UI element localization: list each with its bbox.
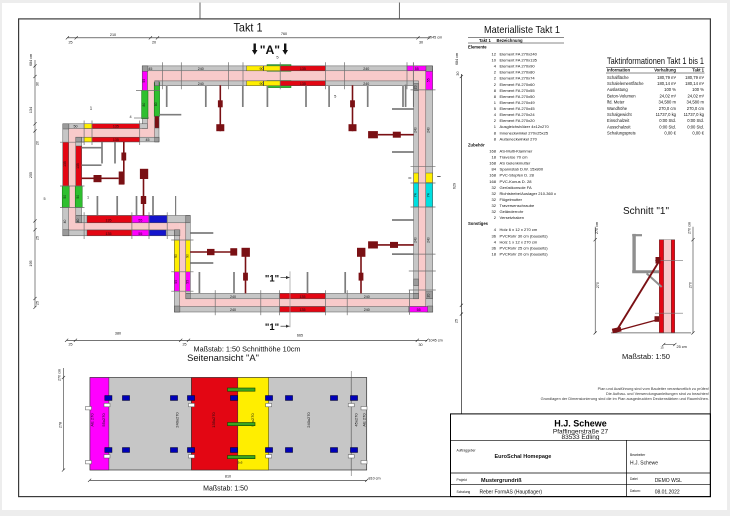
svg-text:Inneneckwinkel 270x25x25: Inneneckwinkel 270x25x25: [500, 130, 549, 135]
svg-text:11737,0 kg: 11737,0 kg: [684, 112, 705, 117]
svg-text:25: 25: [36, 236, 40, 240]
svg-text:11737,0 kg: 11737,0 kg: [656, 112, 677, 117]
svg-text:24,02 m³: 24,02 m³: [659, 93, 676, 98]
svg-text:0:00 Std.: 0:00 Std.: [687, 118, 704, 123]
svg-text:PVC-Stopfen D. 28: PVC-Stopfen D. 28: [500, 173, 535, 178]
svg-text:135: 135: [106, 219, 112, 223]
svg-text:0,00 €: 0,00 €: [692, 131, 704, 136]
svg-text:30: 30: [419, 40, 423, 44]
svg-text:0:00 Std.: 0:00 Std.: [659, 118, 676, 123]
svg-text:40: 40: [76, 219, 80, 223]
svg-text:Element FA 270x24: Element FA 270x24: [500, 112, 536, 117]
svg-text:Schalfläche: Schalfläche: [607, 75, 629, 80]
svg-text:20: 20: [152, 40, 156, 44]
svg-text:Versetzhaken: Versetzhaken: [500, 215, 525, 220]
svg-text:Schnitt "1": Schnitt "1": [623, 206, 669, 217]
svg-text:240: 240: [230, 295, 236, 299]
svg-text:Reber FormAS (Hauptlager): Reber FormAS (Hauptlager): [480, 489, 543, 495]
svg-text:240: 240: [413, 237, 417, 243]
svg-text:2: 2: [494, 215, 497, 220]
svg-text:Flügelmutter: Flügelmutter: [500, 197, 523, 202]
svg-text:100 %: 100 %: [664, 87, 676, 92]
svg-text:1: 1: [90, 106, 93, 111]
svg-text:Materialliste Takt 1: Materialliste Takt 1: [484, 25, 560, 36]
svg-text:24,02 m³: 24,02 m³: [687, 93, 704, 98]
svg-text:PVC-Konus D. 28: PVC-Konus D. 28: [500, 179, 533, 184]
svg-text:Außeneckwinkel 270: Außeneckwinkel 270: [500, 136, 538, 141]
svg-text:25: 25: [455, 319, 459, 323]
svg-text:684 cm: 684 cm: [455, 53, 459, 65]
svg-text:Ausgleichshölzer 4x12x270: Ausgleichshölzer 4x12x270: [500, 124, 550, 129]
svg-text:195: 195: [29, 260, 33, 266]
svg-text:PVCRohr 25 cm (bauseits): PVCRohr 25 cm (bauseits): [500, 245, 549, 250]
svg-text:4: 4: [494, 227, 497, 232]
svg-text:810 cm: 810 cm: [369, 477, 381, 481]
svg-text:Projekt: Projekt: [457, 478, 467, 482]
svg-text:2: 2: [494, 118, 497, 123]
svg-text:25: 25: [68, 343, 72, 347]
svg-text:90: 90: [260, 82, 264, 86]
svg-text:Holz 6 x 12 x 270 cm: Holz 6 x 12 x 270 cm: [500, 227, 538, 232]
svg-text:08.01.2022: 08.01.2022: [655, 490, 680, 496]
svg-text:134: 134: [29, 107, 33, 113]
svg-text:0,00 €: 0,00 €: [664, 131, 676, 136]
svg-text:8: 8: [494, 136, 497, 141]
svg-text:8: 8: [494, 94, 497, 99]
svg-text:36: 36: [491, 233, 496, 238]
svg-text:30: 30: [418, 343, 422, 347]
svg-text:Takt 1: Takt 1: [479, 38, 491, 43]
svg-text:"1": "1": [265, 322, 279, 333]
svg-text:Datei: Datei: [630, 477, 638, 481]
svg-text:760: 760: [281, 32, 287, 36]
svg-text:55: 55: [138, 219, 142, 223]
svg-text:Geländerrohr: Geländerrohr: [500, 209, 524, 214]
svg-text:240: 240: [427, 237, 431, 243]
svg-text:32: 32: [491, 209, 496, 214]
svg-text:240: 240: [230, 308, 236, 312]
svg-text:1045 cm: 1045 cm: [429, 338, 443, 342]
svg-text:DEMO WSL: DEMO WSL: [655, 478, 682, 484]
svg-text:168: 168: [489, 179, 497, 184]
svg-text:45: 45: [146, 138, 150, 142]
svg-text:Takt 1: Takt 1: [692, 68, 704, 73]
svg-text:1: 1: [494, 124, 497, 129]
svg-text:168: 168: [489, 149, 497, 154]
svg-text:55x270: 55x270: [101, 413, 106, 427]
svg-text:55: 55: [427, 78, 431, 82]
svg-text:50: 50: [74, 125, 78, 129]
svg-text:Schalgewicht: Schalgewicht: [607, 112, 633, 117]
svg-text:lfd. Meter: lfd. Meter: [607, 100, 625, 105]
svg-text:5x5: 5x5: [238, 461, 243, 465]
svg-text:34,580 m: 34,580 m: [687, 100, 705, 105]
svg-text:135: 135: [300, 82, 306, 86]
svg-text:Gerüstkonsole FA: Gerüstkonsole FA: [500, 185, 532, 190]
svg-text:5: 5: [43, 197, 45, 201]
svg-text:Element FA 270x90: Element FA 270x90: [500, 64, 536, 69]
svg-text:240: 240: [364, 295, 370, 299]
svg-text:8: 8: [494, 130, 497, 135]
svg-text:380: 380: [115, 332, 121, 336]
svg-text:810: 810: [225, 475, 231, 479]
svg-text:135: 135: [76, 163, 80, 169]
svg-text:255: 255: [29, 172, 33, 178]
svg-text:135: 135: [106, 232, 112, 236]
svg-text:50: 50: [63, 195, 67, 199]
svg-text:278: 278: [59, 422, 63, 428]
svg-text:240: 240: [364, 308, 370, 312]
svg-text:4: 4: [494, 112, 497, 117]
svg-text:210: 210: [110, 33, 116, 37]
svg-text:135: 135: [113, 125, 119, 129]
svg-text:4: 4: [494, 64, 497, 69]
svg-text:0:00 Std.: 0:00 Std.: [659, 124, 676, 129]
svg-text:83533 Edling: 83533 Edling: [562, 434, 600, 441]
svg-text:10: 10: [491, 58, 496, 63]
svg-text:36: 36: [491, 245, 496, 250]
svg-text:180,14 m²: 180,14 m²: [657, 81, 676, 86]
svg-text:Einschalzeit: Einschalzeit: [607, 118, 630, 123]
svg-text:4: 4: [130, 115, 132, 119]
svg-text:Elemente: Elemente: [468, 45, 487, 50]
svg-text:Element FA 270x60: Element FA 270x60: [500, 82, 536, 87]
svg-text:90: 90: [174, 254, 178, 258]
svg-text:18: 18: [491, 155, 496, 160]
svg-text:20: 20: [427, 294, 431, 298]
svg-text:Element FA 270x49: Element FA 270x49: [500, 100, 536, 105]
svg-text:Ausschalzeit: Ausschalzeit: [607, 124, 631, 129]
svg-text:AE 270: AE 270: [90, 413, 95, 427]
svg-text:684 cm: 684 cm: [29, 54, 33, 66]
svg-text:Datum:: Datum:: [630, 489, 641, 493]
svg-text:Mustergrundriß: Mustergrundriß: [481, 478, 522, 484]
svg-text:32: 32: [491, 203, 496, 208]
svg-text:30: 30: [456, 71, 460, 75]
svg-text:135: 135: [113, 138, 119, 142]
svg-text:Bearbeiter: Bearbeiter: [630, 453, 646, 457]
svg-text:Maßstab: 1:50: Maßstab: 1:50: [203, 486, 248, 493]
svg-text:55: 55: [185, 280, 189, 284]
svg-text:50: 50: [76, 195, 80, 199]
svg-text:629: 629: [453, 183, 457, 189]
svg-text:AS Gelenkmutter: AS Gelenkmutter: [500, 161, 531, 166]
svg-text:EuroSchal Homepage: EuroSchal Homepage: [495, 454, 552, 460]
svg-text:2: 2: [494, 76, 497, 81]
svg-text:Takt 1: Takt 1: [234, 21, 263, 35]
svg-text:270,0 cm: 270,0 cm: [687, 106, 705, 111]
svg-text:55: 55: [174, 280, 178, 284]
svg-text:270 cm: 270 cm: [687, 222, 691, 234]
svg-text:20: 20: [36, 141, 40, 145]
svg-text:8: 8: [494, 88, 497, 93]
svg-text:Wandhöhe: Wandhöhe: [607, 106, 628, 111]
svg-text:45: 45: [148, 67, 152, 71]
svg-text:Plan und Ausführung sind vom B: Plan und Ausführung sind vom Bauleiter v…: [598, 387, 709, 391]
svg-text:180,79 m²: 180,79 m²: [657, 75, 676, 80]
svg-text:270: 270: [596, 282, 600, 288]
svg-text:PVCRohr 30 cm (bauseits): PVCRohr 30 cm (bauseits): [500, 233, 549, 238]
svg-text:84: 84: [491, 167, 496, 172]
svg-text:Element FA 270x135: Element FA 270x135: [500, 58, 538, 63]
svg-text:100 %: 100 %: [692, 87, 704, 92]
svg-text:240: 240: [427, 127, 431, 133]
svg-text:Element FA 270x80: Element FA 270x80: [500, 70, 536, 75]
svg-text:Seitenansicht "A": Seitenansicht "A": [187, 352, 259, 363]
svg-text:270 cm: 270 cm: [58, 369, 62, 381]
svg-text:5: 5: [334, 94, 337, 99]
svg-text:AS-Multi-Klammer: AS-Multi-Klammer: [500, 149, 533, 154]
svg-text:74: 74: [427, 193, 431, 197]
svg-text:Zubehör: Zubehör: [468, 142, 485, 147]
svg-text:Element FA 270x45: Element FA 270x45: [500, 106, 536, 111]
svg-text:25: 25: [68, 40, 72, 44]
svg-text:168: 168: [489, 173, 497, 178]
svg-text:45x270: 45x270: [354, 413, 359, 427]
svg-text:4: 4: [494, 239, 497, 244]
svg-text:Element FA 270x55: Element FA 270x55: [500, 88, 536, 93]
svg-text:Auftraggeber: Auftraggeber: [457, 449, 477, 453]
svg-text:180,79 m²: 180,79 m²: [685, 75, 704, 80]
svg-text:Holz 1 x 12 x 270 cm: Holz 1 x 12 x 270 cm: [500, 239, 538, 244]
svg-text:Element FA 270x20: Element FA 270x20: [500, 118, 536, 123]
svg-text:270,0 cm: 270,0 cm: [659, 106, 677, 111]
svg-text:12: 12: [491, 52, 496, 57]
svg-text:Auslastung: Auslastung: [607, 87, 628, 92]
svg-text:55: 55: [415, 67, 419, 71]
svg-text:25 cm: 25 cm: [677, 345, 687, 349]
svg-text:Schalung: Schalung: [457, 490, 471, 494]
svg-text:90: 90: [185, 254, 189, 258]
svg-text:Spannstab D.W. 15x800: Spannstab D.W. 15x800: [500, 167, 544, 172]
svg-text:15: 15: [660, 346, 664, 350]
svg-text:Maßstab: 1:50: Maßstab: 1:50: [622, 352, 670, 361]
svg-text:Beton-Volumen: Beton-Volumen: [607, 93, 636, 98]
svg-text:240: 240: [413, 127, 417, 133]
svg-text:Traversenschraube: Traversenschraube: [500, 203, 535, 208]
svg-text:135: 135: [300, 295, 306, 299]
svg-text:18: 18: [491, 252, 496, 257]
svg-text:90: 90: [260, 67, 264, 71]
svg-text:135x270: 135x270: [211, 412, 216, 428]
svg-text:Richtstrebe/Auslager 210-360 c: Richtstrebe/Auslager 210-360 c: [500, 191, 557, 196]
svg-text:Information: Information: [607, 68, 630, 73]
svg-text:Element FA 270x74: Element FA 270x74: [500, 76, 536, 81]
svg-text:74: 74: [413, 193, 417, 197]
svg-text:25: 25: [182, 343, 186, 347]
svg-text:32: 32: [491, 191, 496, 196]
svg-text:Vorhaltung: Vorhaltung: [654, 68, 676, 73]
svg-text:1: 1: [87, 196, 89, 200]
svg-text:240: 240: [363, 67, 369, 71]
svg-text:135: 135: [300, 67, 306, 71]
svg-text:168: 168: [489, 161, 497, 166]
svg-text:25: 25: [36, 301, 40, 305]
svg-text:270 cm: 270 cm: [595, 222, 599, 234]
svg-text:2: 2: [494, 82, 497, 87]
svg-text:5: 5: [494, 106, 497, 111]
svg-text:PVCRohr 20 cm (bauseits): PVCRohr 20 cm (bauseits): [500, 252, 549, 257]
svg-text:240: 240: [363, 82, 369, 86]
svg-text:Schalelementfläche: Schalelementfläche: [607, 81, 644, 86]
svg-text:Taktinformationen Takt 1 bis: Taktinformationen Takt 1 bis 1: [607, 56, 704, 66]
svg-text:32: 32: [491, 197, 496, 202]
svg-text:Element FA 270x50: Element FA 270x50: [500, 94, 536, 99]
svg-text:240x270: 240x270: [175, 412, 180, 428]
svg-text:665: 665: [297, 333, 303, 337]
svg-text:20: 20: [413, 85, 417, 89]
svg-text:30: 30: [36, 82, 40, 86]
svg-text:Bezeichnung: Bezeichnung: [497, 38, 523, 43]
svg-text:40: 40: [63, 220, 67, 224]
svg-text:180,14 m²: 180,14 m²: [685, 81, 704, 86]
svg-text:240: 240: [198, 67, 204, 71]
svg-text:135: 135: [300, 308, 306, 312]
svg-text:270: 270: [688, 282, 692, 288]
svg-text:Schalungspreis: Schalungspreis: [607, 131, 636, 136]
svg-text:135: 135: [63, 161, 67, 167]
svg-text:2: 2: [494, 70, 497, 75]
svg-text:1045 cm: 1045 cm: [428, 36, 442, 40]
svg-text:80: 80: [142, 103, 146, 107]
svg-text:1: 1: [494, 100, 497, 105]
svg-text:240: 240: [198, 82, 204, 86]
svg-text:H.J. Schewe: H.J. Schewe: [630, 461, 658, 467]
svg-text:Element FA 270x240: Element FA 270x240: [500, 52, 538, 57]
svg-text:Traverse 70 cm: Traverse 70 cm: [500, 155, 529, 160]
svg-text:80: 80: [154, 102, 158, 106]
svg-text:55: 55: [138, 232, 142, 236]
svg-text:Die Aufbau- und Verwendungsanl: Die Aufbau- und Verwendungsanleitungen s…: [606, 392, 709, 396]
svg-text:55: 55: [417, 308, 421, 312]
svg-text:AE 270: AE 270: [362, 413, 367, 427]
svg-text:0:00 Std.: 0:00 Std.: [687, 124, 704, 129]
svg-text:"1": "1": [265, 273, 279, 284]
svg-text:Grundlagen der Dimensionierung: Grundlagen der Dimensionierung sind die …: [541, 397, 709, 401]
svg-text:H.J. Schewe: H.J. Schewe: [554, 418, 607, 428]
svg-text:240x270: 240x270: [306, 412, 311, 428]
svg-text:Sonstiges: Sonstiges: [468, 221, 489, 226]
svg-text:34,580 m: 34,580 m: [659, 100, 677, 105]
svg-text:55: 55: [142, 79, 146, 83]
svg-text:32: 32: [491, 185, 496, 190]
